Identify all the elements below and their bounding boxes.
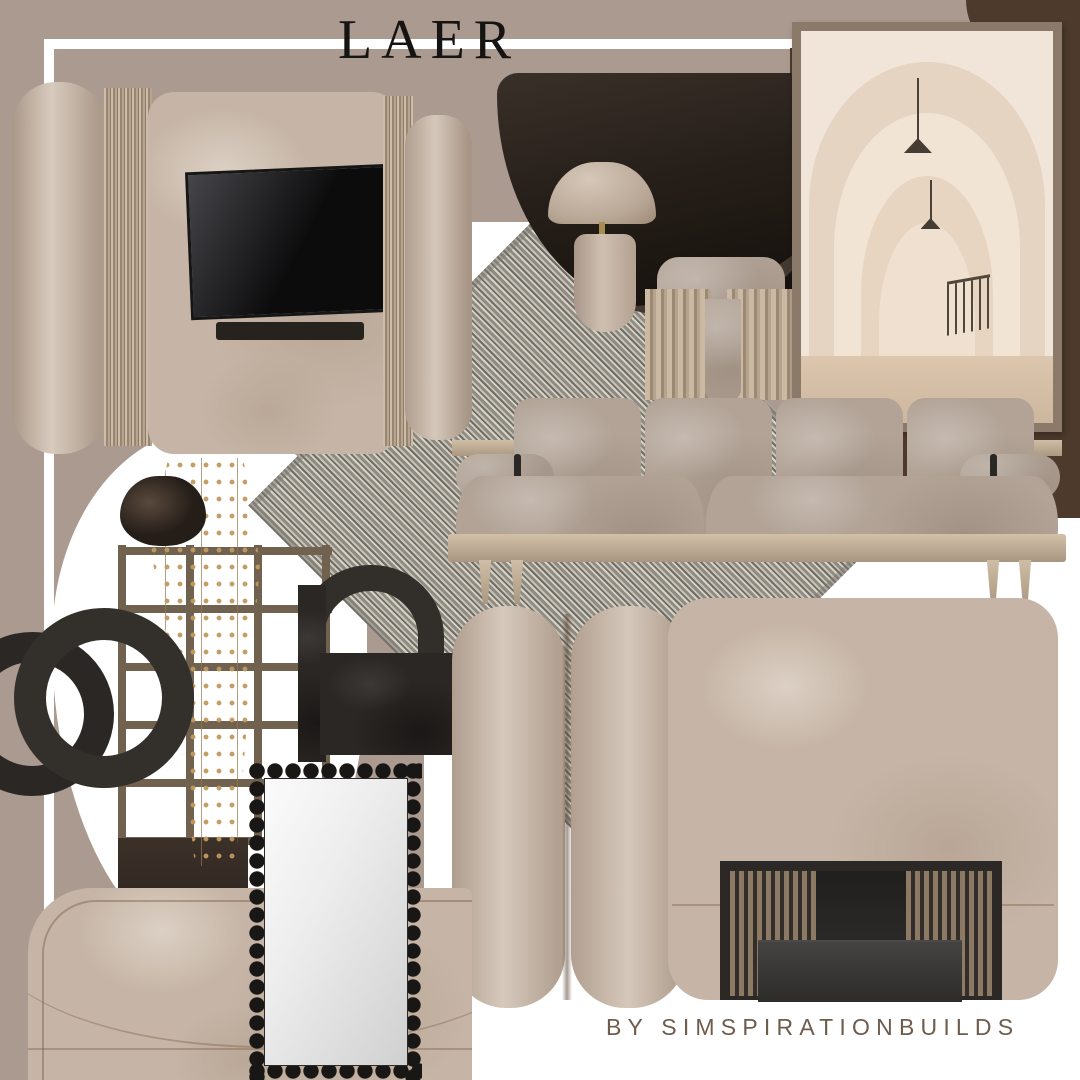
pendant-lamp-2 (930, 180, 932, 220)
sofa-base-frame (448, 534, 1066, 562)
plant-pot (120, 476, 206, 546)
credit-text: BY SIMSPIRATIONBUILDS (606, 1014, 1019, 1041)
mirror-glass (264, 778, 408, 1066)
tv-wall-cylinder-left (12, 82, 106, 454)
fireplace (720, 861, 1002, 1000)
accent-chair (645, 255, 797, 400)
bead-mirror (248, 762, 422, 1080)
table-lamp-dome (548, 162, 656, 224)
table-lamp (548, 162, 658, 332)
panel-headboard-double (452, 606, 686, 1008)
knot-sculpture (0, 612, 148, 760)
table-lamp-base (574, 234, 636, 332)
tv-media-wall (10, 78, 472, 458)
tv-screen (185, 164, 397, 320)
sofa-leg-2 (506, 560, 528, 604)
fireplace-hearth (758, 940, 962, 1002)
stair-railing (947, 274, 990, 336)
sofa (448, 392, 1066, 606)
moodboard: LAER BY SIMSPIRATIONBUILDS (0, 0, 1080, 1080)
panel-seam (562, 614, 572, 1000)
arch-stool (292, 565, 462, 762)
tv-soundbar (216, 322, 364, 340)
pendant-lamp-1 (917, 78, 919, 140)
accent-chair-center-cushion (705, 299, 741, 400)
wall-art-frame (792, 22, 1062, 432)
arch-stool-seat (320, 653, 462, 755)
page-title: LAER (338, 8, 520, 72)
sofa-leg-1 (474, 560, 496, 604)
arch-photo (801, 31, 1053, 423)
tv-wall-fluted-left (104, 88, 152, 446)
fireplace-headboard (668, 598, 1058, 1000)
tv-wall-panel (148, 92, 398, 454)
